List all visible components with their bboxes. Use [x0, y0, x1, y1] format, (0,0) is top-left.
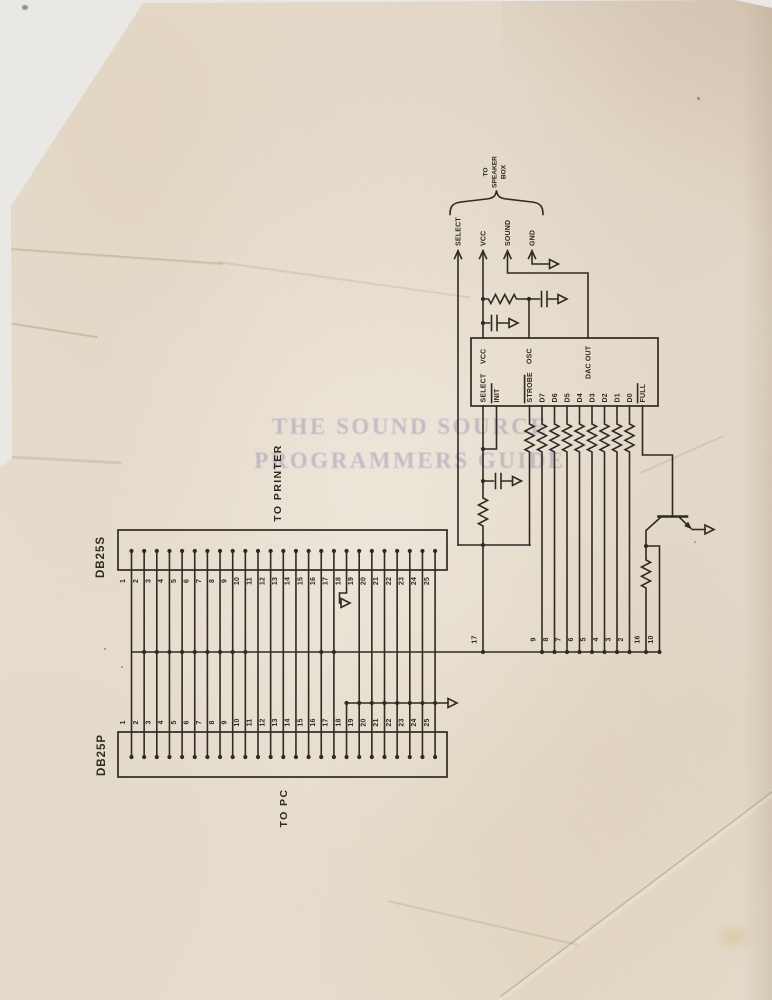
junction-dot: [256, 755, 260, 759]
junction-dot: [644, 544, 648, 548]
junction-dots: [129, 297, 661, 759]
junction-dot: [627, 650, 631, 654]
junction-dot: [231, 549, 235, 553]
junction-dot: [344, 701, 348, 705]
junction-dot: [231, 755, 235, 759]
schematic-wiring: [118, 251, 673, 777]
db25s-pin-number: 5: [171, 579, 178, 583]
junction-dot: [180, 549, 184, 553]
junction-dot: [205, 549, 209, 553]
db25p-pin-number: 23: [399, 718, 406, 726]
junction-dot: [205, 755, 209, 759]
ic-pin-vcc: VCC: [481, 349, 488, 364]
junction-dot: [370, 755, 374, 759]
db25p-pin-number: 17: [323, 718, 330, 726]
db25s-pin-number: 16: [310, 577, 317, 585]
scanned-page: THE SOUND SOURCE PROGRAMMERS GUIDE TO SP…: [0, 0, 772, 1000]
junction-dot: [408, 701, 412, 705]
db25p-pin-number: 12: [259, 718, 266, 726]
db25s-pin-number: 9: [221, 579, 228, 583]
ground-arrow-icon: [448, 699, 457, 708]
bus-pin-number: 5: [581, 637, 588, 641]
ic-bottom-pin-label: D4: [577, 393, 584, 402]
ground-arrow-icon: [558, 295, 567, 304]
junction-dot: [420, 755, 424, 759]
junction-dot: [307, 549, 311, 553]
junction-dot: [552, 650, 556, 654]
bus-pin-number: 9: [531, 637, 538, 641]
db25s-pin-number: 2: [133, 579, 140, 583]
data-line-resistor-wire: [625, 406, 634, 652]
ground-arrow-icon: [705, 525, 714, 534]
db25s-pin-number: 13: [272, 577, 279, 585]
db25s-pin-number: 15: [297, 577, 304, 585]
db25s-pin-number: 6: [183, 579, 190, 583]
db25s-pin-number: 14: [285, 577, 292, 585]
junction-dot: [615, 650, 619, 654]
junction-dot: [370, 701, 374, 705]
junction-dot: [142, 650, 146, 654]
junction-dot: [332, 650, 336, 654]
junction-dot: [602, 650, 606, 654]
junction-dot: [129, 755, 133, 759]
db25s-pin-number: 8: [209, 579, 216, 583]
junction-dot: [344, 755, 348, 759]
junction-dot: [142, 755, 146, 759]
junction-dot: [193, 755, 197, 759]
speaker-label-line: TO: [483, 167, 490, 176]
db25s-pin-number: 25: [424, 577, 431, 585]
bus-pin-number: 6: [568, 637, 575, 641]
db25p-pin-number: 10: [234, 718, 241, 726]
junction-dot: [395, 549, 399, 553]
junction-dot: [657, 650, 661, 654]
bus-pin-number: 3: [606, 637, 613, 641]
speaker-label-line: SPEAKER: [492, 156, 499, 188]
junction-dot: [395, 701, 399, 705]
generated-labels: 1122334455667788991010111112121313141415…: [120, 372, 655, 727]
signal-label-select: SELECT: [456, 217, 463, 246]
junction-dot: [256, 549, 260, 553]
db25s-pin-number: 12: [259, 577, 266, 585]
junction-dot: [540, 650, 544, 654]
ic-bottom-pin-label: D1: [615, 393, 622, 402]
db25p-pin-number: 14: [285, 718, 292, 726]
junction-dot: [481, 321, 485, 325]
arrow-up-icons: [455, 251, 536, 259]
junction-dot: [155, 650, 159, 654]
junction-dot: [420, 549, 424, 553]
junction-dot: [395, 755, 399, 759]
junction-dot: [243, 549, 247, 553]
generated-wires: [132, 376, 638, 758]
junction-dot: [344, 549, 348, 553]
transistor: [646, 517, 705, 547]
junction-dot: [332, 549, 336, 553]
circuit-schematic: TO SPEAKER BOX SELECT VCC SOUND GND: [0, 0, 772, 1000]
data-line-resistor-wire: [588, 406, 597, 652]
ground-arrow-icon: [513, 477, 522, 486]
select-chain-wire: [479, 406, 488, 652]
junction-dot: [180, 755, 184, 759]
junction-dot: [357, 701, 361, 705]
capacitor: [483, 316, 509, 331]
junction-dot: [155, 755, 159, 759]
junction-dot: [577, 650, 581, 654]
db25p-pin-number: 6: [183, 720, 190, 724]
junction-dot: [527, 297, 531, 301]
db25p-pin-number: 25: [424, 718, 431, 726]
ground-arrow-icon: [341, 599, 350, 608]
junction-dot: [420, 701, 424, 705]
junction-dot: [382, 701, 386, 705]
junction-dot: [205, 650, 209, 654]
junction-dot: [481, 447, 485, 451]
junction-dot: [433, 755, 437, 759]
junction-dot: [433, 549, 437, 553]
junction-dot: [481, 297, 485, 301]
ic-bottom-pin-label: INIT: [494, 388, 501, 403]
db25p-pin-number: 5: [171, 720, 178, 724]
junction-dot: [565, 650, 569, 654]
db25s-pin-number: 19: [348, 577, 355, 585]
junction-dot: [319, 549, 323, 553]
data-line-resistor-wire: [550, 406, 559, 652]
ic-pin-osc: OSC: [527, 348, 534, 364]
bus-pin-number: 4: [593, 637, 600, 641]
junction-dot: [319, 755, 323, 759]
db25p-pin-number: 16: [310, 718, 317, 726]
ic-bottom-pin-label: D5: [565, 393, 572, 402]
junction-dot: [193, 549, 197, 553]
signal-label-gnd: GND: [530, 230, 537, 246]
junction-dot: [142, 549, 146, 553]
junction-dot: [218, 650, 222, 654]
transistor-base-lead: [646, 517, 662, 547]
ic-top-pin-labels: VCC OSC DAC OUT: [481, 345, 593, 379]
db25s-pin-number: 3: [146, 579, 153, 583]
to-printer-label: TO PRINTER: [272, 444, 284, 521]
junction-dot: [294, 549, 298, 553]
db25s-label: DB25S: [95, 536, 107, 578]
db25p-pin-number: 3: [146, 720, 153, 724]
junction-dot: [481, 543, 485, 547]
db25p-pin-number: 13: [272, 718, 279, 726]
db25s-pin-number: 11: [247, 577, 254, 585]
junction-dot: [129, 549, 133, 553]
junction-dot: [481, 650, 485, 654]
speaker-box-header: TO SPEAKER BOX SELECT VCC SOUND GND: [450, 156, 543, 259]
junction-dot: [481, 479, 485, 483]
init-wire: [483, 406, 497, 449]
db25s-pin-number: 4: [158, 579, 165, 583]
db25p-label: DB25P: [96, 734, 108, 776]
db25p-pin-number: 11: [247, 719, 254, 727]
db25s-pin-number: 24: [411, 577, 418, 585]
junction-dot: [243, 650, 247, 654]
full-wire: [643, 406, 673, 516]
junction-dot: [269, 549, 273, 553]
data-line-resistor-wire: [538, 406, 547, 652]
ic-bottom-pin-label: FULL: [640, 383, 647, 402]
ic-bottom-pin-label: D6: [552, 393, 559, 402]
junction-dot: [218, 549, 222, 553]
db25s-pin-number: 20: [361, 577, 368, 585]
db25p-pin-number: 2: [133, 720, 140, 724]
ground-arrow-icon: [509, 319, 518, 328]
junction-dot: [382, 755, 386, 759]
junction-dot: [193, 650, 197, 654]
db25p-pin-number: 15: [297, 718, 304, 726]
db25s-pin-number: 17: [323, 577, 330, 585]
db25p-pin-number: 18: [335, 718, 342, 726]
junction-dot: [167, 549, 171, 553]
paper: THE SOUND SOURCE PROGRAMMERS GUIDE TO SP…: [0, 0, 772, 1000]
data-line-resistor-wire: [600, 406, 609, 652]
junction-dot: [319, 650, 323, 654]
brace-icon: [450, 191, 543, 215]
junction-dot: [332, 755, 336, 759]
ic-pin-dac-out: DAC OUT: [586, 345, 593, 379]
db25p-pin-number: 1: [120, 720, 127, 724]
data-line-resistor-wire: [613, 406, 622, 652]
capacitor: [529, 292, 558, 307]
data-line-resistor-wire: [563, 406, 572, 652]
junction-dot: [644, 650, 648, 654]
signal-label-sound: SOUND: [505, 220, 512, 246]
junction-dot: [167, 755, 171, 759]
junction-dot: [243, 755, 247, 759]
db25p-pin-number: 9: [221, 720, 228, 724]
ic-bottom-pin-label: D3: [590, 393, 597, 402]
junction-dot: [590, 650, 594, 654]
ic-bottom-pin-label: SELECT: [481, 373, 488, 402]
db25p-pin-number: 7: [196, 720, 203, 724]
junction-dot: [370, 549, 374, 553]
db25s-pin-number: 21: [373, 577, 380, 585]
junction-dot: [155, 549, 159, 553]
junction-dot: [218, 755, 222, 759]
junction-dot: [408, 755, 412, 759]
junction-dot: [408, 549, 412, 553]
bus-pin-number: 10: [648, 635, 655, 643]
bus-pin-number: 7: [556, 637, 563, 641]
bus-pin-number: 8: [543, 637, 550, 641]
db25s-pin-number: 23: [399, 577, 406, 585]
strobe-wire: [525, 406, 534, 545]
junction-dot: [357, 755, 361, 759]
junction-dot: [382, 549, 386, 553]
ic-bottom-pin-label: D0: [627, 393, 634, 402]
signal-label-vcc: VCC: [481, 231, 488, 246]
data-line-resistor-wire: [575, 406, 584, 652]
db25p-pin-number: 21: [373, 718, 380, 726]
junction-dot: [294, 755, 298, 759]
db25p-pin-number: 20: [361, 718, 368, 726]
junction-dot: [180, 650, 184, 654]
junction-dot: [357, 549, 361, 553]
ic-bottom-pin-label: D2: [602, 393, 609, 402]
db25p-pin-number: 8: [209, 720, 216, 724]
junction-dot: [167, 650, 171, 654]
bus-pin-number: 2: [618, 637, 625, 641]
background-speck: [22, 5, 28, 10]
junction-dot: [281, 549, 285, 553]
resistor: [483, 295, 529, 304]
db25p-pin-number: 4: [158, 720, 165, 724]
db25p-pin-number: 19: [348, 718, 355, 726]
db25s-pin-number: 18: [335, 577, 342, 585]
junction-dot: [281, 755, 285, 759]
ic-bottom-pin-label: STROBE: [527, 372, 534, 403]
db25p-pin-number: 22: [386, 718, 393, 726]
ic-bottom-pin-label: D7: [540, 393, 547, 402]
db25s-pin-number: 1: [120, 579, 127, 583]
db25s-pin-number: 22: [386, 577, 393, 585]
db25s-pin-number: 7: [196, 579, 203, 583]
ground-arrow-icon: [550, 260, 559, 269]
junction-dot: [231, 650, 235, 654]
bus-pin-number: 16: [635, 635, 642, 643]
junction-dot: [307, 755, 311, 759]
speaker-label-line: BOX: [501, 164, 508, 179]
junction-dot: [433, 701, 437, 705]
junction-dot: [269, 755, 273, 759]
capacitor: [483, 474, 513, 489]
db25p-pin-number: 24: [411, 718, 418, 726]
to-pc-label: TO PC: [278, 789, 290, 828]
bus-pin-number: 17: [472, 635, 479, 643]
db25s-pin-number: 10: [234, 577, 241, 585]
